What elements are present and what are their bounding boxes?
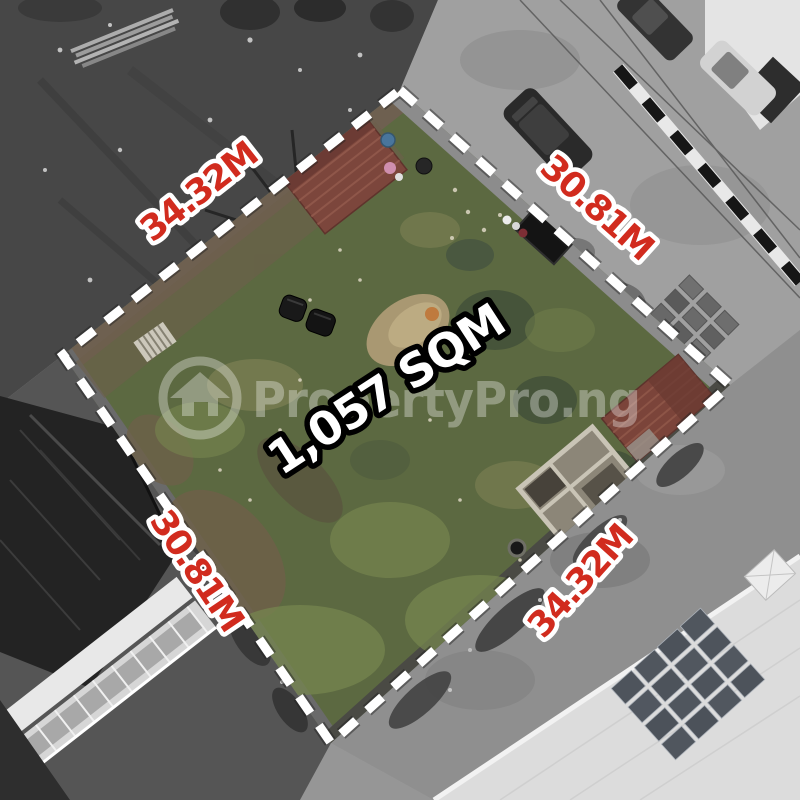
white-bundle [395, 173, 403, 181]
aerial-photo: PropertyPro.ng 34.32M 30.81M 30.81M 34.3… [0, 0, 800, 800]
blue-drum [381, 133, 395, 147]
pink-bundle [384, 162, 396, 174]
aerial-photo-canvas: PropertyPro.ng 34.32M 30.81M 30.81M 34.3… [0, 0, 800, 800]
dark-drum [416, 158, 432, 174]
well-hole [509, 540, 525, 556]
